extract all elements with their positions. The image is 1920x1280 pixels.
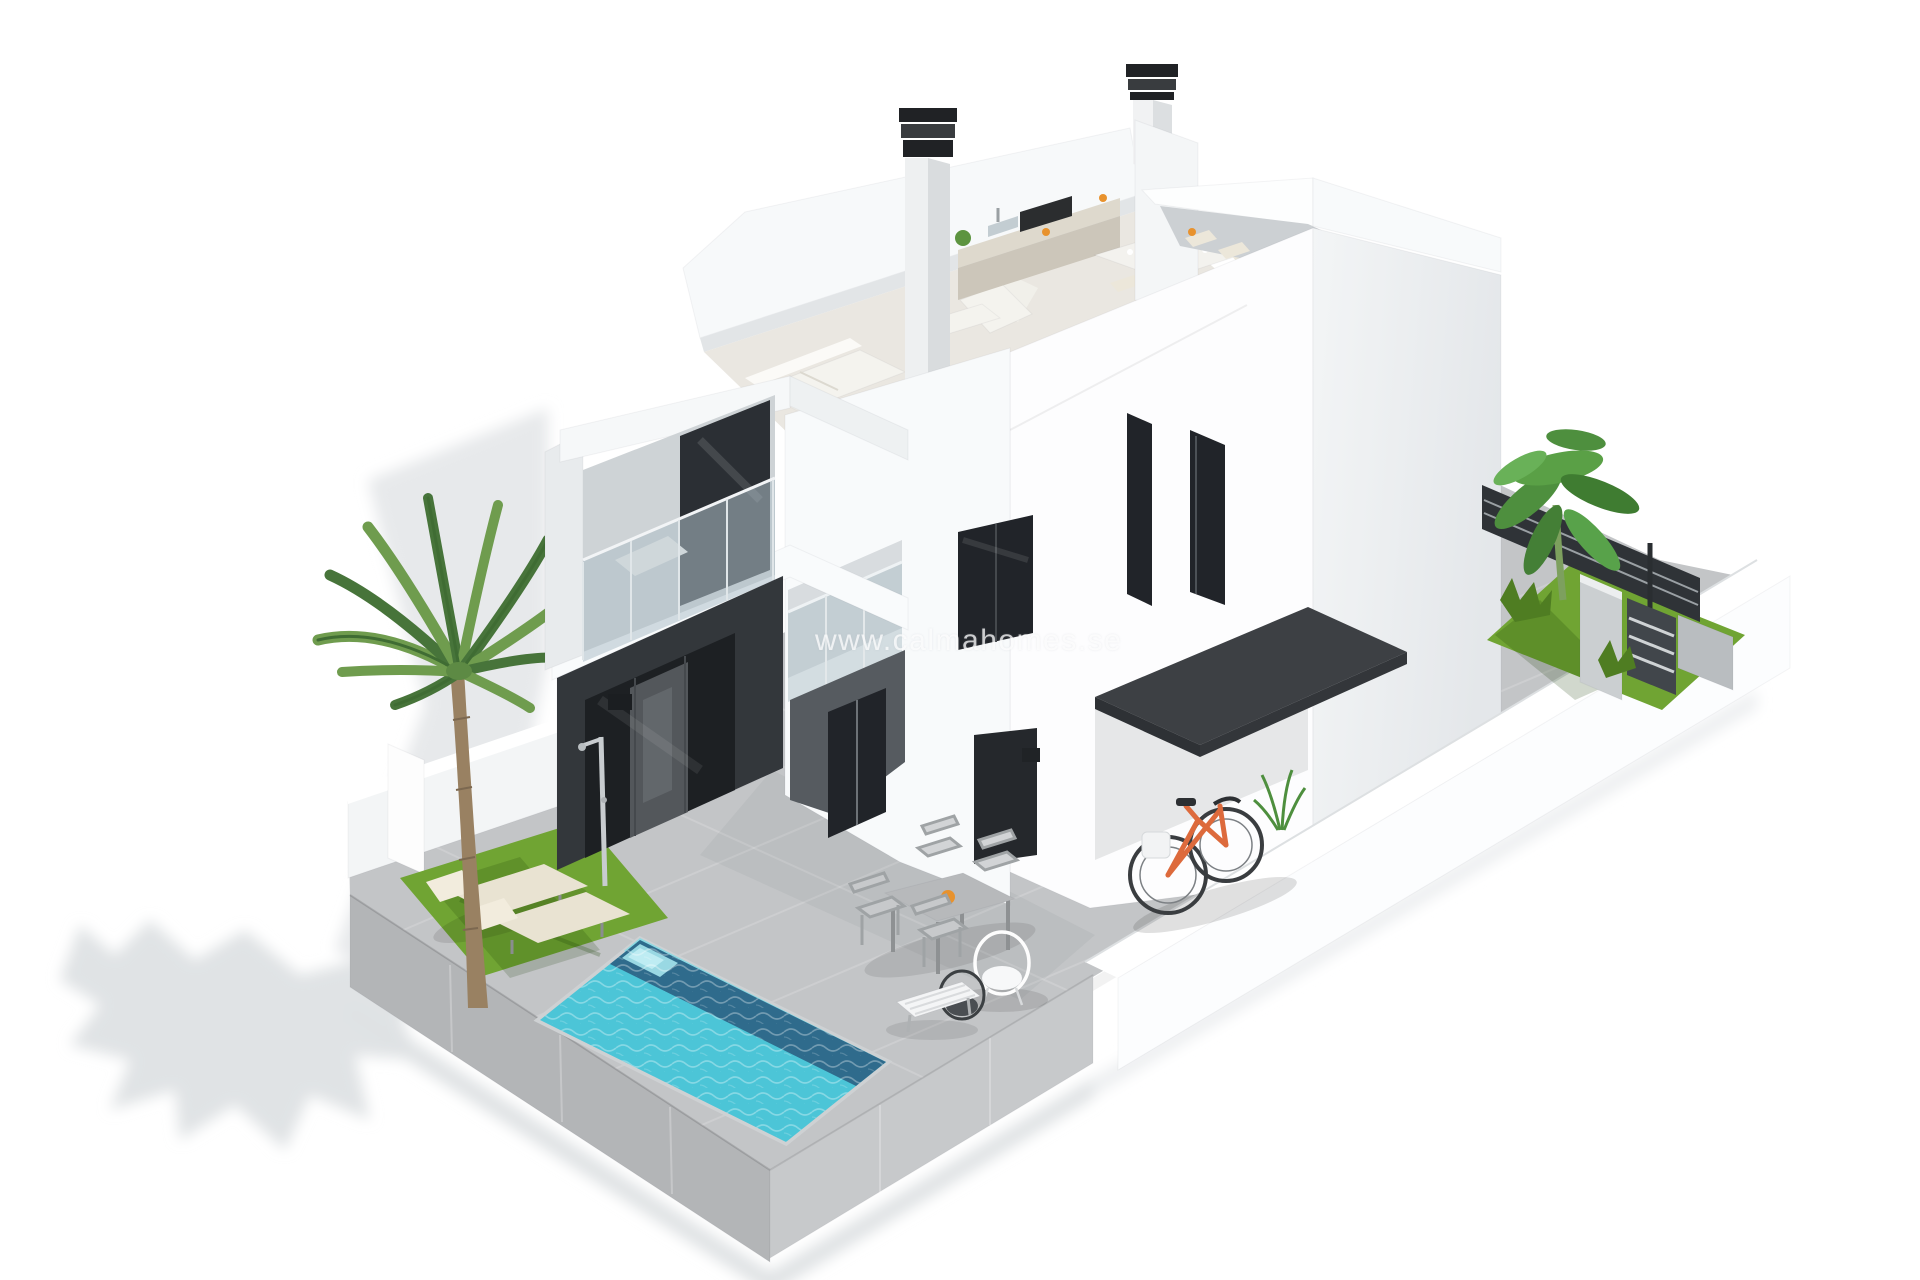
chimney-1	[899, 108, 957, 388]
villa	[545, 64, 1501, 908]
balcony-side-face	[545, 432, 583, 670]
wall-lamp	[1022, 748, 1040, 762]
window-slit	[1127, 413, 1152, 606]
wall-pillar	[388, 744, 424, 874]
bike-seat	[1176, 798, 1196, 806]
kitchen-plant	[955, 230, 971, 246]
watermark-text: www.calmahomes.se	[815, 624, 1122, 658]
gate-pillar	[1580, 580, 1622, 700]
outdoor-wall-lamp	[608, 694, 632, 710]
villa-render-scene: www.calmahomes.se	[0, 0, 1920, 1280]
bike-bag	[1142, 832, 1170, 858]
